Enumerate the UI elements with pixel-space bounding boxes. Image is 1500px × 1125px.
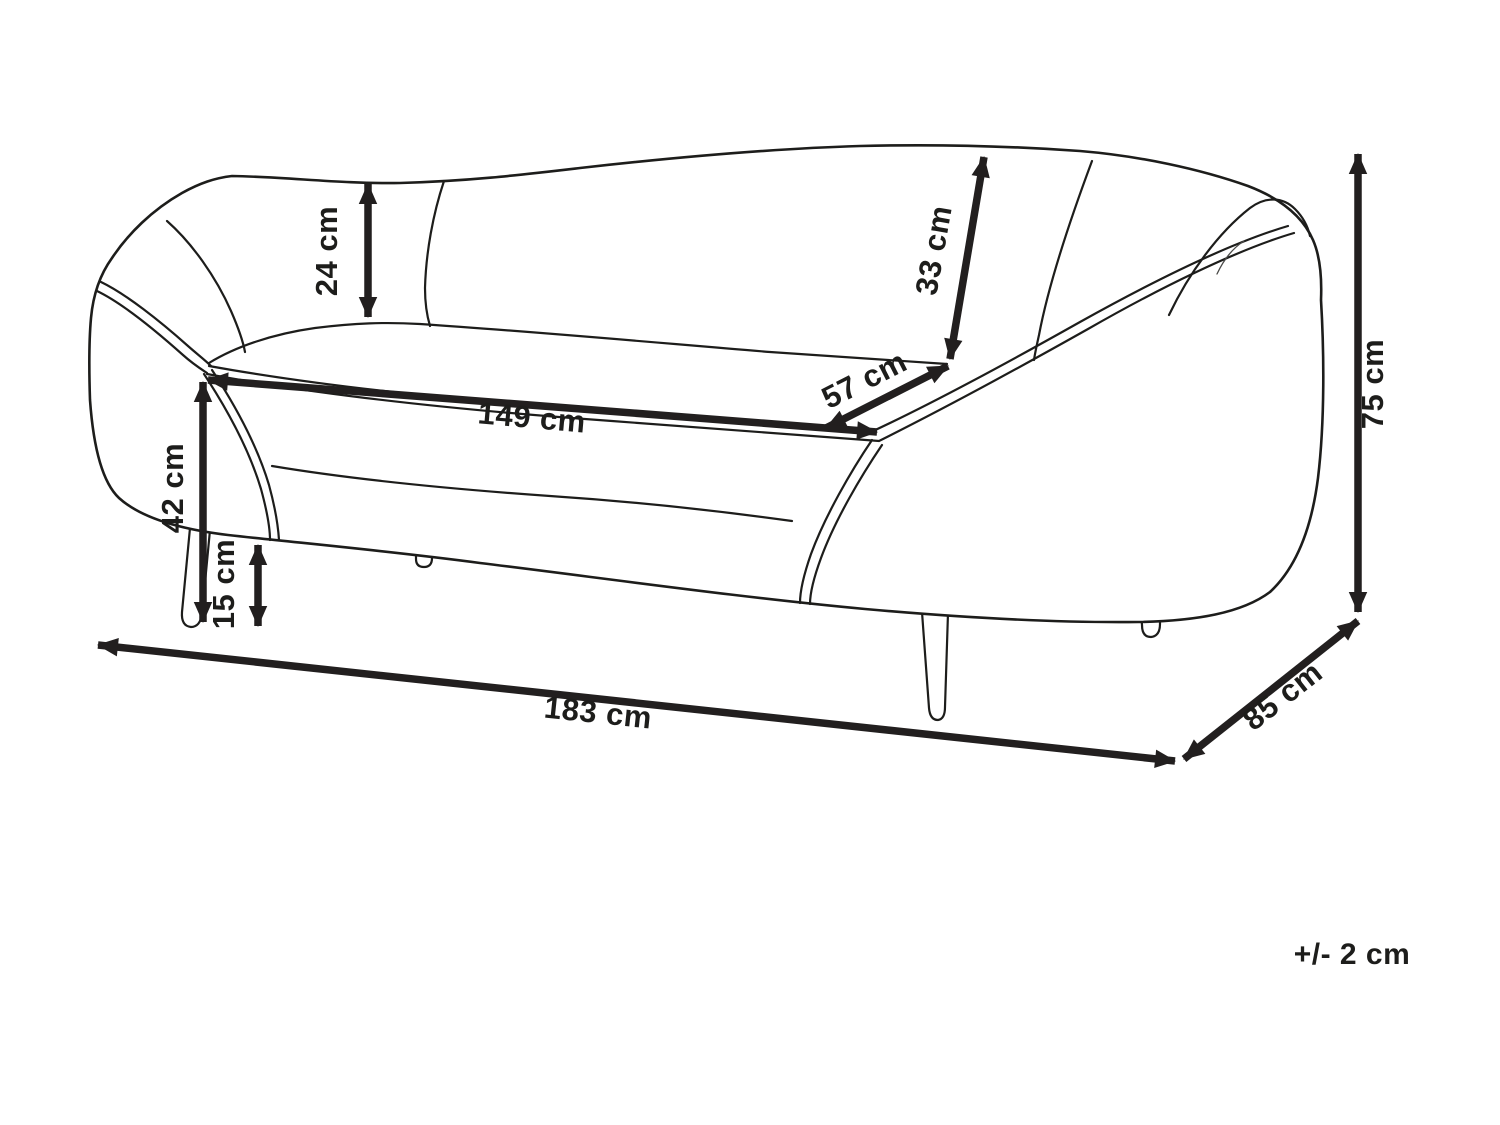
front-right-leg (922, 612, 948, 720)
sofa-line-drawing (89, 145, 1323, 720)
dim-label-overall-depth: 85 cm (1236, 654, 1329, 737)
dim-label-leg-height: 15 cm (206, 539, 241, 629)
sofa-dimension-diagram: 24 cm 33 cm 57 cm 149 cm 42 cm 15 cm 183… (0, 0, 1500, 1125)
dim-label-seat-height: 42 cm (155, 443, 190, 533)
dim-label-overall-height: 75 cm (1355, 339, 1390, 429)
diagram-canvas: 24 cm 33 cm 57 cm 149 cm 42 cm 15 cm 183… (0, 0, 1500, 1125)
dim-label-backrest-height: 24 cm (309, 206, 344, 296)
dim-label-overall-width: 183 cm (542, 690, 653, 736)
tolerance-note: +/- 2 cm (1294, 938, 1411, 971)
